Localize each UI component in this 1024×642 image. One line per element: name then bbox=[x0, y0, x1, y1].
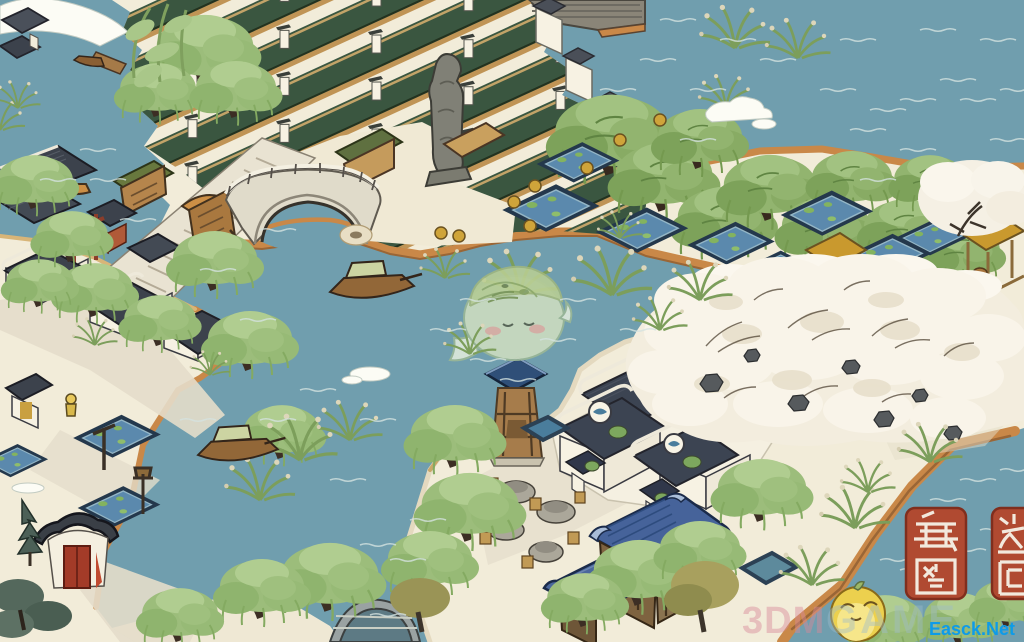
svg-text:Easck.Net: Easck.Net bbox=[929, 619, 1015, 639]
svg-text:3DM: 3DM bbox=[742, 600, 825, 642]
